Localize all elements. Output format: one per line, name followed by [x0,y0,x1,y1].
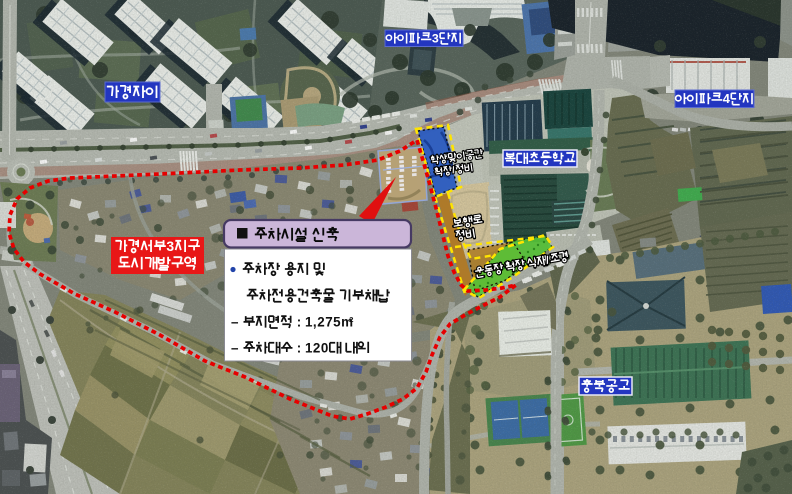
svg-text:3: 3 [166,238,174,254]
svg-text:0: 0 [321,341,328,356]
svg-text:1: 1 [305,341,313,356]
svg-text:5: 5 [333,315,341,330]
svg-text:7: 7 [325,315,332,330]
svg-text:2: 2 [317,315,324,330]
svg-text:–: – [231,341,239,356]
svg-text::: : [297,315,301,330]
svg-text:1: 1 [305,315,313,330]
svg-text:4: 4 [723,91,731,106]
svg-text:²: ² [349,315,354,330]
svg-text:2: 2 [313,341,320,356]
svg-text:,: , [313,315,317,330]
svg-text:3: 3 [432,32,439,46]
svg-text::: : [297,341,301,356]
svg-text:–: – [231,315,239,330]
